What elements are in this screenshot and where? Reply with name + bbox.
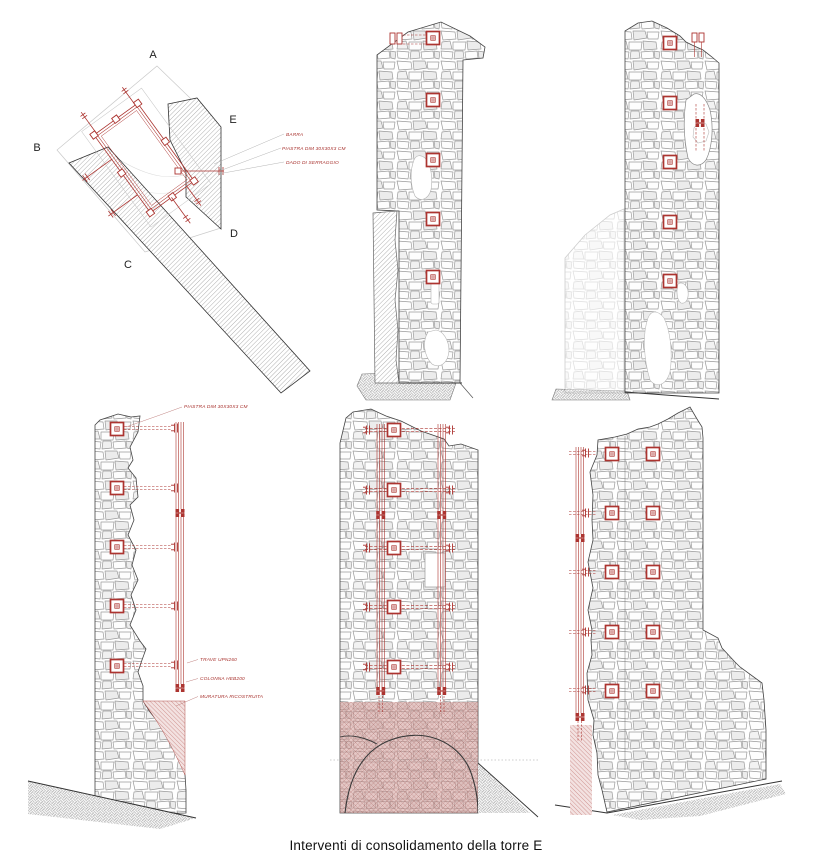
rebuilt-masonry-pink [340, 702, 478, 813]
tower-masonry [587, 407, 766, 812]
rear-elevation-panel [555, 407, 786, 820]
plan-corner-d: D [230, 228, 238, 240]
splice-detail [376, 687, 385, 695]
front-elevation-2 [552, 21, 719, 400]
tower-masonry [95, 414, 186, 815]
tower-masonry [625, 21, 719, 393]
plan-corner-e: E [229, 114, 236, 126]
splice-detail [376, 511, 385, 519]
annotation-piastra-2: PIASTRA DIM 30X30X3 CM [184, 404, 248, 410]
plan-corner-b: B [33, 142, 40, 154]
background-wall-faded [565, 209, 624, 393]
side-elevation-panel: PIASTRA DIM 30X30X3 CM TRAVE UPN260 COLO… [28, 404, 263, 829]
rebuilt-masonry-hatch [570, 725, 592, 815]
drawing-sheet: A B C D E BARRA PIASTRA DIM 30X30X3 CM D… [0, 0, 832, 868]
splice-detail [576, 713, 585, 721]
splice-detail [176, 684, 185, 692]
annotation-piastra: PIASTRA DIM 30X30X3 CM [282, 146, 346, 152]
front-elevation-1 [357, 22, 485, 400]
section-wall-hatch [373, 211, 399, 383]
drawing-caption: Interventi di consolidamento della torre… [0, 838, 832, 853]
annotation-trave: TRAVE UPN260 [200, 657, 237, 663]
consolidation-drawing: A B C D E BARRA PIASTRA DIM 30X30X3 CM D… [0, 0, 832, 836]
steel-column [576, 447, 584, 742]
splice-detail [696, 119, 705, 127]
annotation-barra: BARRA [286, 132, 303, 138]
annotation-colonna: COLONNA HEB200 [200, 676, 245, 682]
steel-column [176, 422, 184, 688]
annotation-dado: DADO DI SERRAGGIO [286, 160, 339, 166]
annotation-muratura: MURATURA RICOSTRUITA [200, 694, 263, 700]
plan-view-panel: A B C D E BARRA PIASTRA DIM 30X30X3 CM D… [33, 49, 345, 393]
splice-detail [176, 509, 185, 517]
framed-elevation-panel [330, 409, 540, 817]
plan-wall-east [168, 98, 221, 229]
splice-detail [437, 687, 446, 695]
splice-detail [437, 511, 446, 519]
plan-leader-lines [214, 134, 284, 174]
plan-corner-a: A [149, 49, 157, 61]
masonry-opening [425, 553, 445, 587]
plan-corner-c: C [124, 259, 132, 271]
splice-detail [576, 534, 585, 542]
